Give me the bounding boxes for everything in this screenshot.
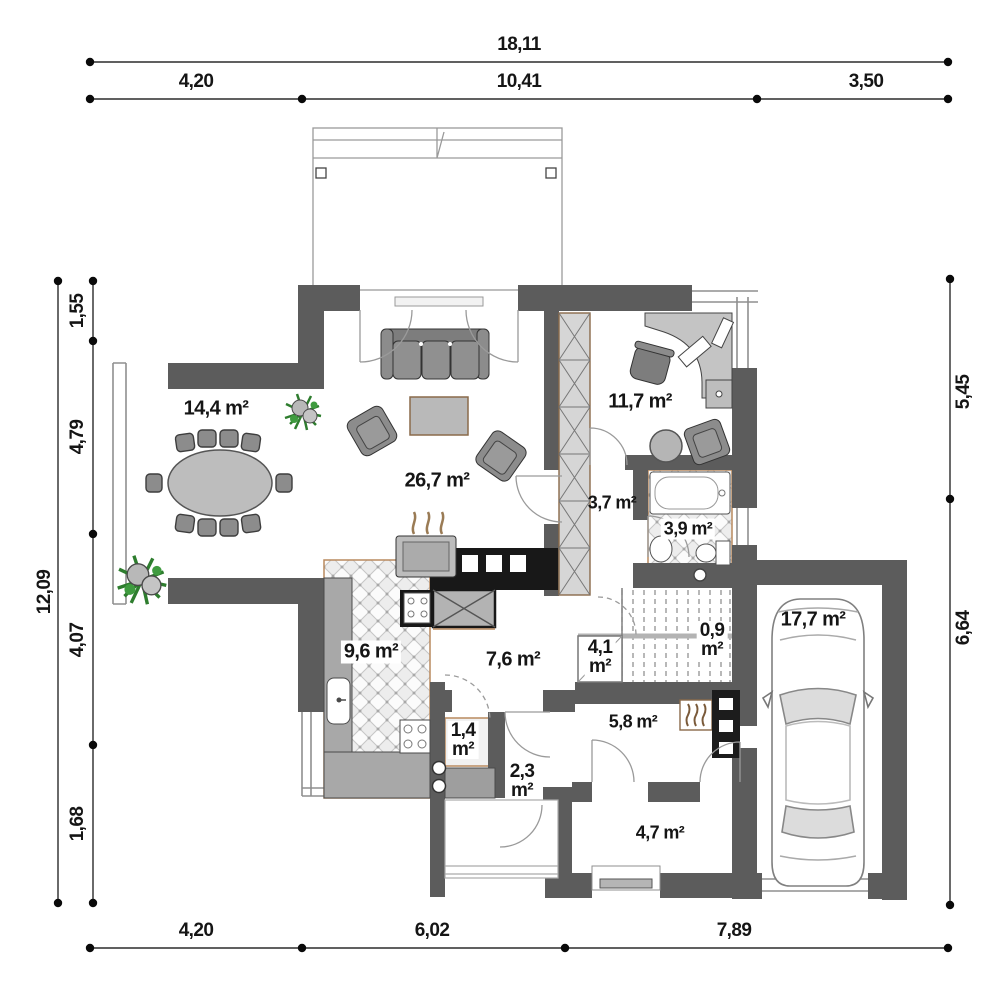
entrance-door [592, 866, 660, 890]
vestibule-value: 2,3 [510, 762, 535, 781]
landing-value: 0,9 [700, 621, 725, 640]
dining-bay-window [113, 363, 126, 604]
stair-door [598, 597, 636, 635]
coffee-table [410, 397, 468, 435]
plant-small [285, 394, 321, 430]
dim-top-2: 10,41 [497, 71, 542, 93]
dim-right-2: 6,64 [953, 611, 975, 646]
room-label-landing: 0,9 m² [697, 621, 728, 659]
room-label-utility: 5,8 m² [609, 712, 657, 733]
room-label-pantry: 1,4 m² [448, 721, 479, 759]
dim-left-2: 4,79 [67, 420, 89, 455]
dim-top-total: 18,11 [497, 34, 541, 56]
dim-top-3: 3,50 [849, 71, 884, 93]
landing-unit: m² [701, 640, 723, 659]
room-label-vestibule: 2,3 m² [510, 762, 535, 800]
room-label-garage: 17,7 m² [781, 609, 846, 632]
room-label-dining: 14,4 m² [184, 398, 249, 421]
room-label-hall: 7,6 m² [486, 649, 540, 672]
armchair-left [345, 404, 400, 459]
office-chair [627, 341, 675, 387]
washbasin [650, 536, 672, 562]
dim-right-1: 5,45 [953, 375, 975, 410]
room-label-office: 11,7 m² [608, 391, 672, 414]
utility-door-left [592, 740, 634, 782]
living-corridor-door [516, 476, 562, 522]
room-label-kitchen: 9,6 m² [341, 641, 401, 664]
dim-bottom-3: 7,89 [717, 920, 752, 942]
dim-bottom-1: 4,20 [179, 920, 214, 942]
wardrobe [559, 313, 590, 595]
dim-bottom-2: 6,02 [415, 920, 450, 942]
terrace-door-sill [395, 297, 483, 306]
stove [396, 512, 456, 577]
room-label-bathroom: 3,9 m² [661, 519, 715, 540]
floor-plan: 18,11 4,20 10,41 3,50 12,09 1,55 4,79 4,… [0, 0, 998, 1000]
radiator [680, 700, 712, 730]
corner-window-right [737, 297, 748, 368]
dim-left-total: 12,09 [34, 570, 56, 615]
dim-left-3: 4,07 [67, 623, 89, 658]
dining-table [168, 450, 272, 516]
dim-left-1: 1,55 [67, 294, 89, 329]
round-table [650, 430, 682, 462]
terrace [313, 128, 562, 290]
room-label-entry: 4,7 m² [636, 823, 684, 844]
office-door [590, 428, 627, 465]
pantry-value: 1,4 [451, 721, 476, 740]
side-window [737, 508, 748, 545]
kitchen-island [433, 590, 495, 629]
floorplan-canvas [0, 0, 998, 1000]
living-set [345, 329, 529, 484]
car [763, 599, 873, 886]
dining-set [146, 430, 292, 536]
pantry-unit: m² [452, 740, 474, 759]
room-label-understairs: 4,1 m² [585, 638, 616, 676]
dim-left-4: 1,68 [67, 807, 89, 842]
room-label-living: 26,7 m² [405, 470, 470, 493]
understairs-value: 4,1 [588, 638, 613, 657]
vestibule-door [505, 712, 550, 757]
drainer [404, 593, 430, 623]
plant-large [118, 556, 167, 605]
vestibule-unit: m² [511, 781, 533, 800]
room-label-corridor: 3,7 m² [588, 493, 636, 514]
kitchen-hob [400, 720, 430, 753]
boiler [712, 690, 740, 758]
dim-top-1: 4,20 [179, 71, 214, 93]
understairs-unit: m² [589, 657, 611, 676]
hall-cabinet [445, 768, 495, 798]
